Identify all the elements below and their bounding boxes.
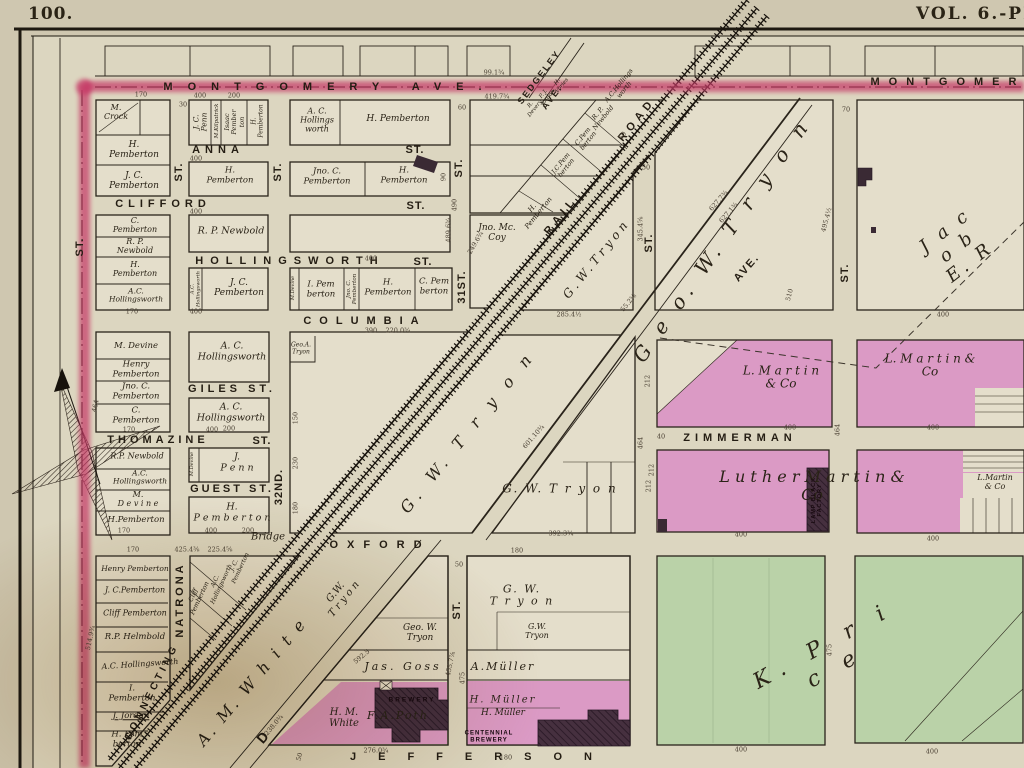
owner-m-devine-4: M. D e v i n e	[118, 491, 159, 509]
dim-90-31: 90	[440, 173, 447, 181]
owner-gw-tryon-mueller-block: G. W. T r y o n	[490, 584, 555, 609]
owner-rp-newbold-rr: R. P. Newbold	[586, 100, 616, 132]
dim-30-a: 30	[179, 101, 187, 108]
owner-c-pemberton-rr: C.Pem berton	[573, 126, 598, 152]
street-31st-st-south: ST.	[451, 601, 463, 620]
street-columbia: COLUMBIA	[303, 315, 426, 327]
dim-180-b: 180	[500, 754, 512, 761]
owner-i-pemberton-5: I. Pemberton	[109, 684, 156, 703]
street-sedgeley-ave: AVE.	[539, 83, 564, 112]
street-giles: GILES ST.	[188, 383, 276, 395]
street-montgomery-ave: MONTGOMERY AVE.	[163, 81, 496, 93]
atlas-sheet: 100. VOL. 6.-PL	[0, 0, 1024, 768]
dim-510: 510	[785, 288, 795, 302]
street-oxford: OXFORD	[329, 539, 430, 551]
street-natrona: NATRONA	[174, 562, 186, 637]
dim-180-32: 180	[292, 502, 299, 514]
owner-jnoc-pemberton-strip: Jno. C. Pemberton	[346, 274, 358, 304]
dim-180-a: 180	[511, 547, 523, 554]
street-zimmerman: ZIMMERMAN	[683, 432, 796, 444]
owner-c-pemberton-rowd: C. Pem berton	[419, 277, 449, 296]
owner-h-mueller-2: H. Müller	[481, 708, 525, 718]
label-centennial-brewery: CENTENNIAL BREWERY	[465, 730, 514, 743]
dim-70: 70	[842, 106, 850, 113]
owner-h-pemberton-2: H. Pemberton	[113, 261, 157, 279]
owner-geow-tryon: Geo. W. Tryon	[403, 623, 437, 643]
owner-l-martin-2: L. M a r t i n & Co	[883, 353, 977, 380]
street-32nd-st-label: ST.	[272, 163, 284, 182]
owner-ac-hollingsworth-5: A.C. Hollingsworth	[101, 658, 178, 672]
owner-gw-tryon-triangle-e: G.W.Tryon	[561, 216, 633, 301]
dim-400-c: 400	[190, 208, 202, 215]
dim-276-0: 276.0¾	[364, 747, 389, 754]
owner-a-mueller: A.Müller	[471, 661, 536, 673]
dim-150-32: 150	[292, 412, 299, 424]
street-thomazine: THOMAZINE	[107, 434, 208, 446]
owner-cliff-pemberton-diag: Cliff Pemberton	[183, 578, 211, 617]
owner-am-white: A. M. W h i t e	[193, 614, 310, 749]
dim-400-f: 400	[206, 426, 218, 433]
dim-400-a: 400	[194, 92, 206, 99]
dim-230-32: 230	[292, 457, 299, 469]
dim-225-4: 225.4⅝	[208, 546, 233, 553]
owner-hm-white: H. M. White	[329, 707, 359, 729]
owner-m-crock: M. Crock	[104, 104, 128, 122]
label-lamp-black-factory: LAMP BLACK FACTORY	[811, 477, 823, 523]
dim-514-9: 514.9¾	[85, 625, 97, 651]
owner-ac-hollingsworth-4: A.C. Hollingsworth	[113, 470, 167, 487]
owner-ac-hollingsworth-top: A. C. Hollings worth	[300, 108, 334, 135]
dim-390: 390	[365, 327, 377, 334]
dim-249-6: 249.6¾	[467, 230, 486, 255]
dim-475-g: 475	[826, 644, 833, 656]
dim-495-4: 495.4½	[820, 207, 833, 233]
owner-ac-hollingsworth-rowe: A. C. Hollingsworth	[198, 341, 267, 362]
dim-200-b: 200	[223, 425, 235, 432]
owner-h-pemberton-rr: H. Pemberton	[518, 191, 555, 231]
street-31st-st-label: ST.	[453, 159, 465, 178]
owner-isaac-pemberton: Isaac Pember ton	[224, 109, 246, 134]
dim-627-1: 627.1¾	[718, 201, 740, 225]
owner-rp-helmbold: R.P. Helmbold	[105, 633, 165, 643]
owner-rp-newbold-4: R.P. Newbold	[110, 453, 164, 462]
dim-400-i: 400	[926, 748, 938, 755]
dim-212-e2: 212	[645, 480, 652, 492]
street-clifford-st: ST.	[407, 200, 426, 212]
owner-h-pemberton-rowd: H. Pemberton	[365, 278, 412, 297]
owner-gw-tryon-small: G.W. Tryon	[525, 623, 549, 641]
owner-jc-pemberton-5: J. C.Pemberton	[105, 587, 165, 596]
owner-h-mueller-1: H. Müller	[470, 694, 537, 705]
owner-h-pemberton-rowb1: H. Pemberton	[207, 166, 254, 185]
dim-400-n: 400	[937, 311, 949, 318]
dim-200-c: 200	[242, 527, 254, 534]
dim-592-5: 592.5	[353, 648, 372, 666]
owner-h-pemberton-rowb2: H. Pemberton	[381, 166, 428, 185]
dim-345-4: 345.4⅝	[637, 217, 644, 242]
dim-400-b: 400	[190, 155, 202, 162]
street-32nd: 32ND.	[273, 469, 285, 505]
dim-400-h: 400	[735, 746, 747, 753]
street-ave-diagonal: AVE.	[732, 252, 763, 285]
dim-455-7: 455.7⅞	[445, 651, 457, 677]
owner-geo-w-tryon-mega: G e o. W. T r y o n	[629, 113, 816, 366]
map-labels-layer: MONTGOMERY AVE.MONTGOMERANNAST.CLIFFORDS…	[0, 0, 1024, 768]
owner-ac-hollingsworth-2: A.C. Hollingsworth	[109, 288, 163, 305]
street-hollingsworth: HOLLINGSWORTH	[195, 255, 384, 267]
owner-h-pemberton-4: H.Pemberton	[107, 516, 164, 526]
dim-50-tri: 50	[642, 164, 650, 171]
street-anna: ANNA	[192, 144, 244, 156]
street-30th-st-label: ST.	[643, 234, 655, 253]
dim-464-z: 464	[834, 424, 841, 436]
street-31st: 31ST.	[456, 270, 468, 303]
owner-l-martin-1: L. M a r t i n & Co	[743, 365, 819, 392]
owner-cliff-pemberton-5: Cliff Pemberton	[103, 610, 167, 619]
dim-400-g: 400	[205, 527, 217, 534]
owner-jc-pemberton-diag: J. C. Pemberton	[225, 549, 251, 585]
owner-jnoc-pemberton-3: Jno. C. Pemberton	[113, 382, 160, 401]
owner-jc-pemberton-rowd: J. C. Pemberton	[214, 278, 264, 298]
label-bridge: Bridge	[251, 531, 285, 542]
railroad-label-road: ROAD	[616, 96, 659, 144]
dim-419-7: 419.7¾	[485, 93, 510, 100]
owner-m-devine-strip2: M.Devine	[190, 452, 196, 476]
dim-170-e: 170	[127, 546, 139, 553]
street-natrona-st-label: ST.	[173, 163, 185, 182]
owner-ac-hollingsworth-rr: A.C.Hollings worth	[603, 67, 640, 108]
owner-luther-martin: L u t h e r M a r t i n & Co	[706, 468, 918, 504]
owner-m-devine-3: M. Devine	[114, 342, 158, 352]
dim-220-0: 220.0¾	[386, 327, 411, 334]
dim-170-a: 170	[135, 91, 147, 98]
owner-h-pemberton-1: H. Pemberton	[109, 140, 159, 160]
owner-henry-pemberton-5: Henry Pemberton	[101, 565, 168, 573]
owner-m-devine-strip: M.Devine	[291, 276, 297, 300]
dim-170-d: 170	[118, 527, 130, 534]
dim-490: 490	[451, 199, 458, 211]
owner-jc-pemberton-1: J. C. Pemberton	[109, 171, 159, 191]
owner-c-pemberton-2: C. Pemberton	[113, 217, 157, 235]
owner-jacob-e-r: J a c o b E. R	[913, 203, 1002, 291]
dim-475-s: 475	[459, 672, 466, 684]
street-st-left: ST.	[74, 238, 86, 257]
dim-627-7: 627.7¾	[708, 189, 730, 213]
dim-400-e: 400	[190, 308, 202, 315]
owner-jc-pemberton-rr: J.C.Pem berton	[550, 152, 577, 181]
owner-jno-mccoy: Jno. Mc. Coy	[478, 223, 516, 243]
dim-464-w: 464	[91, 399, 101, 413]
owner-h-pemberton-rowh: H. P e m b e r t o n	[193, 502, 270, 523]
street-hollingsworth-st: ST.	[414, 256, 433, 268]
dim-170-b: 170	[126, 308, 138, 315]
dim-40-z: 40	[657, 433, 665, 440]
owner-r-devery: R. Devery	[522, 95, 544, 118]
owner-rp-newbold-rowc: R. P. Newbold	[198, 227, 265, 238]
dim-285-4: 285.4½	[557, 311, 582, 318]
railroad-label-connecting: CONNECTING	[123, 642, 182, 743]
dim-400-l: 400	[784, 424, 796, 431]
street-29th-st-label: ST.	[839, 264, 851, 283]
owner-gw-tryon-sliver: G.W. T r y o n	[318, 573, 362, 620]
owner-kilpatrick: M.Kilpatrick	[214, 104, 220, 139]
label-brewery: BREWERY	[389, 696, 436, 703]
dim-601-10: 601.10¾	[522, 424, 547, 451]
street-guest: GUEST ST.	[190, 483, 274, 495]
owner-gw-tryon-triangle-s: G. W. T r y o n	[502, 482, 617, 495]
dim-99-1: 99.1¾	[484, 69, 505, 76]
owner-h-pemberton-top: H. Pemberton	[366, 114, 429, 124]
owner-ac-hollingsworth-diag: A.C. Hollingsworth	[204, 561, 234, 606]
owner-jas-goss: Jas. Goss	[364, 661, 441, 673]
owner-c-pemberton-3: C. Pemberton	[113, 406, 160, 425]
dim-400-k: 400	[927, 535, 939, 542]
owner-jc-penn: J. C. Penn	[193, 113, 210, 132]
dim-1238: 1238.0¾	[261, 714, 285, 741]
owner-l-martin-3: L.Martin & Co	[977, 474, 1013, 492]
owner-jnoc-pemberton-rowb: Jno. C. Pemberton	[304, 167, 351, 186]
owner-h-pemberton-anna: H. Pemberton	[251, 104, 264, 137]
railroad-label-rail: RAIL	[542, 194, 580, 237]
owner-i-pemberton-rowd: I. Pem berton	[307, 280, 336, 299]
dim-400-d: 400	[365, 255, 377, 262]
owner-j-penn: J. P e n n	[220, 452, 253, 473]
owner-pj-jordan: P. J. Jordan	[535, 85, 556, 107]
dim-400-j: 400	[735, 531, 747, 538]
dim-425-4: 425.4⅜	[175, 546, 200, 553]
owner-j-jordan: J. Jordan	[113, 712, 150, 722]
dim-50-jeff: 50	[295, 752, 304, 762]
dim-200-a: 200	[228, 92, 240, 99]
street-clifford: CLIFFORD	[115, 198, 211, 210]
owner-fa-poth: F.A.Poth	[367, 710, 429, 722]
owner-rp-newbold-2: R. P. Newbold	[117, 238, 153, 256]
dim-60-a: 60	[458, 104, 466, 111]
dim-50-ox: 50	[455, 561, 463, 568]
road-letter-d: D	[254, 729, 272, 747]
dim-464-e: 464	[637, 437, 644, 449]
street-montgomery-right: MONTGOMER	[871, 76, 1024, 88]
owner-ac-hollingsworth-strip: A.C. Hollingsworth	[190, 271, 201, 307]
street-jefferson: JEFFERSON	[350, 751, 614, 763]
owner-geo-a-tryon: Geo.A. Tryon	[291, 342, 311, 355]
street-anna-st: ST.	[406, 144, 425, 156]
dim-170-c: 170	[123, 426, 135, 433]
owner-k-price: K. P r i c e	[733, 588, 927, 725]
dim-212-lm: 212	[648, 464, 655, 476]
owner-gw-tryon-parallelogram: G. W. T r y o n	[397, 347, 539, 517]
owner-henry-pemberton-3: Henry Pemberton	[113, 360, 160, 379]
dim-489-6: 489.6¾	[445, 218, 452, 243]
dim-50-rr: 50	[618, 130, 629, 141]
dim-400-m: 400	[927, 424, 939, 431]
dim-55-2: 55.2⅝	[620, 293, 639, 314]
owner-h-pemberton-6: H. Pem berton	[111, 730, 142, 749]
owner-h-vories: H. Vories	[550, 73, 570, 94]
street-sedgeley: SEDGELEY	[515, 48, 562, 106]
street-thomazine-st: ST.	[253, 435, 272, 447]
dim-212-e1: 212	[644, 375, 651, 387]
owner-ac-hollingsworth-rowf: A. C. Hollingsworth	[197, 402, 266, 423]
dim-392-3: 392.3¾	[549, 530, 574, 537]
